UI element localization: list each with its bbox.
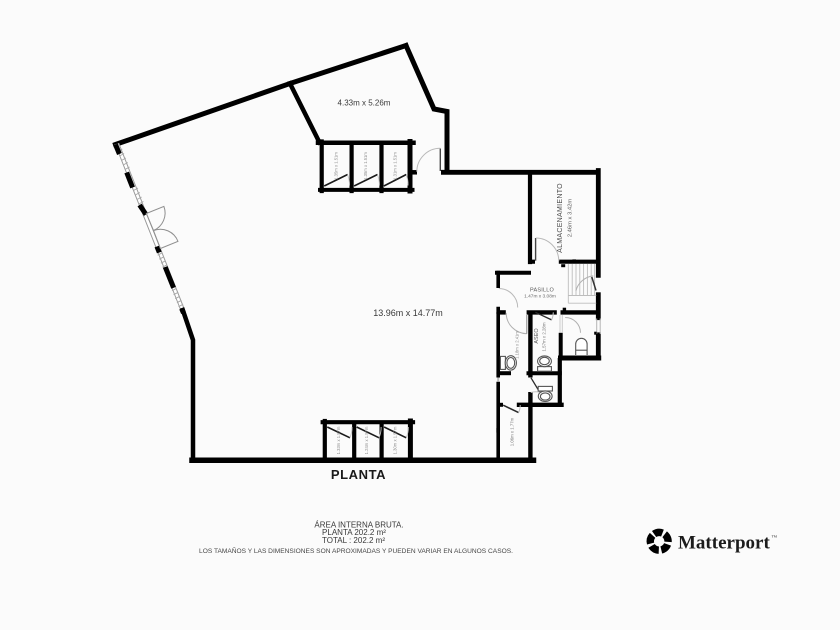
svg-text:1.31m x 1.51m: 1.31m x 1.51m: [393, 152, 398, 180]
svg-text:1.18m x 2.41m: 1.18m x 2.41m: [515, 331, 520, 359]
svg-text:ALMACENAMIENTO: ALMACENAMIENTO: [557, 183, 564, 253]
svg-text:ASEO: ASEO: [534, 328, 540, 344]
svg-text:1.35m x 1.51m: 1.35m x 1.51m: [363, 152, 368, 180]
svg-text:1.47m x 3.08m: 1.47m x 3.08m: [524, 294, 556, 300]
svg-text:1.57m x 2.28m: 1.57m x 2.28m: [542, 322, 547, 351]
svg-text:PASILLO: PASILLO: [530, 288, 554, 294]
svg-text:13.96m x 14.77m: 13.96m x 14.77m: [373, 308, 443, 318]
svg-text:LOS TAMAÑOS Y LAS DIMENSIONES: LOS TAMAÑOS Y LAS DIMENSIONES SON APROXI…: [199, 546, 513, 555]
svg-text:1.30m x 1.57m: 1.30m x 1.57m: [392, 426, 397, 454]
svg-text:1.06m x 1.77m: 1.06m x 1.77m: [510, 417, 515, 446]
svg-text:2.46m x 3.42m: 2.46m x 3.42m: [568, 199, 574, 238]
svg-text:1.24m x 1.57m: 1.24m x 1.57m: [364, 426, 369, 454]
svg-text:TOTAL : 202.2 m²: TOTAL : 202.2 m²: [322, 536, 385, 545]
svg-text:1.33m x 1.57m: 1.33m x 1.57m: [336, 426, 341, 454]
svg-text:1.35m x 1.51m: 1.35m x 1.51m: [334, 152, 339, 180]
svg-text:PLANTA: PLANTA: [331, 467, 386, 482]
svg-text:™: ™: [772, 535, 778, 541]
svg-text:4.33m x 5.26m: 4.33m x 5.26m: [338, 99, 391, 108]
svg-text:Matterport: Matterport: [678, 533, 770, 554]
